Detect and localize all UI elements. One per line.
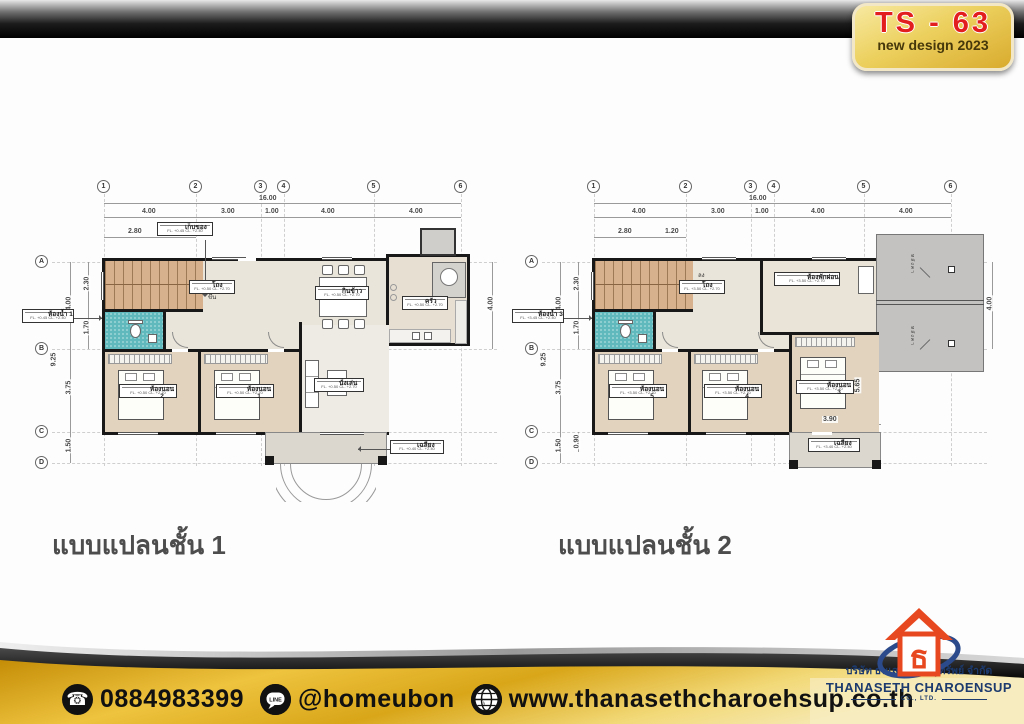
dim-sub: 1.70 (573, 320, 580, 336)
window (320, 432, 364, 435)
roof (876, 234, 984, 372)
dim-sub: 2.30 (83, 276, 90, 292)
bath-sink (148, 334, 157, 343)
porch-steps (276, 464, 376, 502)
dim-col: 4.00 (141, 208, 157, 215)
dim-line (104, 237, 196, 238)
grid-col-marker: 1 (97, 180, 110, 193)
line-item: LINE @homeubon (260, 684, 455, 715)
svg-text:LINE: LINE (269, 698, 282, 704)
wall (102, 309, 203, 312)
floor-plan-1: 1 2 3 4 5 6 A B C D 16.00 4.00 3.00 1.00… (22, 172, 522, 517)
chair (322, 319, 333, 329)
company-block: ธ บริษัท ธนเสฏฐ์ เจริญทรัพย์ จำกัด THANA… (824, 662, 1014, 702)
grid-col-marker: 3 (744, 180, 757, 193)
column (872, 460, 881, 469)
porch (265, 432, 387, 464)
grid-col-marker: 2 (189, 180, 202, 193)
leader-arrow (99, 315, 105, 321)
grid-row-marker: D (525, 456, 538, 469)
dim-row: 1.50 (65, 438, 72, 454)
svg-text:ธ: ธ (909, 639, 929, 675)
dim-col: 4.00 (631, 208, 647, 215)
grid-col-marker: 5 (367, 180, 380, 193)
bath-sink (638, 334, 647, 343)
grid-col-marker: 3 (254, 180, 267, 193)
wall (299, 322, 302, 432)
model-subtitle: new design 2023 (855, 37, 1011, 53)
dim-sub: 1.20 (664, 228, 680, 235)
dim-row: 3.75 (555, 380, 562, 396)
door-opening (172, 349, 188, 352)
burner (424, 332, 432, 340)
toilet-tank (128, 320, 143, 324)
dim-col: 1.00 (754, 208, 770, 215)
phone-item: ☎ 0884983399 (62, 684, 244, 715)
kitchen-counter (389, 329, 451, 343)
room-label-porch: เฉลียงFL. +0.40 CL. +2.40 (390, 440, 444, 454)
wardrobe (204, 354, 268, 364)
grid-row-marker: A (35, 255, 48, 268)
window (101, 272, 104, 300)
room-label-lounge: ห้องพักผ่อนFL. +3.50 CL. +2.70 (774, 272, 840, 286)
dim-total-width: 16.00 (258, 195, 278, 202)
burner (412, 332, 420, 340)
plan2-title: แบบแปลนชั้น 2 (558, 525, 732, 566)
line-app-icon: LINE (260, 684, 291, 715)
room-label-bedroom1: ห้องนอน 1FL. +0.50 CL. +2.70 (216, 384, 274, 398)
toilet (620, 324, 631, 338)
leader-arrow (355, 446, 361, 452)
leader-line (358, 449, 390, 450)
dim-right: 4.00 (487, 296, 494, 312)
grid-row-marker: A (525, 255, 538, 268)
chair (354, 265, 365, 275)
stair-direction-note: ลง (698, 270, 705, 280)
dim-line (594, 217, 951, 218)
divider-line (942, 699, 987, 700)
column (948, 266, 955, 273)
grid-row-marker: C (35, 425, 48, 438)
wall (198, 352, 201, 432)
grid-col-marker: 2 (679, 180, 692, 193)
dim-sub: 2.80 (617, 228, 633, 235)
room-label-dining: กินข้าวFL. +0.50 CL. +2.70 (315, 286, 369, 300)
wall (653, 312, 656, 352)
window (322, 257, 352, 260)
wall (789, 335, 792, 432)
dim-line (104, 203, 461, 204)
door-opening (238, 258, 256, 261)
room-label-bath: ห้องน้ำ 3FL. +3.45 CL. +2.40 (512, 309, 564, 323)
toilet (130, 324, 141, 338)
roof-label: หลังคา (908, 326, 916, 346)
room-label-living: นั่งเล่นFL. +0.50 CL. +2.70 (314, 378, 364, 392)
grid-col-marker: 4 (767, 180, 780, 193)
roof-ridge (876, 300, 984, 301)
dim-balcony-width: 3.90 (822, 416, 838, 423)
stove-chimney (420, 228, 456, 256)
chair (354, 319, 365, 329)
chair (322, 265, 333, 275)
wall (163, 312, 166, 352)
dim-col: 1.00 (264, 208, 280, 215)
dim-col: 3.00 (220, 208, 236, 215)
dim-line (70, 262, 71, 463)
grid-col-marker: 6 (944, 180, 957, 193)
dim-col: 4.00 (408, 208, 424, 215)
dim-total-width: 16.00 (748, 195, 768, 202)
kitchen-counter (455, 300, 467, 344)
dim-col: 4.00 (810, 208, 826, 215)
gridline (542, 463, 987, 464)
column (378, 456, 387, 465)
room-label-bedroom5: ห้องนอน 5FL. +3.50 CL. +2.70 (609, 384, 667, 398)
divider-line (851, 699, 896, 700)
leader-arrow (589, 315, 595, 321)
dim-sub: 2.30 (573, 276, 580, 292)
dim-col: 4.00 (320, 208, 336, 215)
round-sink (440, 268, 458, 286)
grid-row-marker: D (35, 456, 48, 469)
phone-icon: ☎ (62, 684, 93, 715)
grid-col-marker: 5 (857, 180, 870, 193)
dim-total-height: 9.25 (540, 352, 547, 368)
model-code: TS - 63 (855, 7, 1011, 40)
plan1-title: แบบแปลนชั้น 1 (52, 525, 226, 566)
line-id: @homeubon (298, 685, 455, 714)
leader-line (74, 318, 102, 319)
grid-col-marker: 4 (277, 180, 290, 193)
burner (390, 284, 397, 291)
dim-col: 3.00 (710, 208, 726, 215)
wardrobe (108, 354, 172, 364)
column (948, 340, 955, 347)
dim-line (594, 203, 951, 204)
dim-total-height: 9.25 (50, 352, 57, 368)
room-label-bedroom3: ห้องนอน 3FL. +3.50 CL. +2.70 (796, 380, 854, 394)
door-opening (758, 349, 774, 352)
burner (390, 294, 397, 301)
grid-col-marker: 1 (587, 180, 600, 193)
dim-col: 4.00 (898, 208, 914, 215)
window (591, 272, 594, 300)
room-label-kitchen: ครัวFL. +0.50 CL. +2.70 (402, 296, 448, 310)
model-badge: TS - 63 new design 2023 (852, 3, 1014, 71)
room-label-bedroom4: ห้องนอน 4FL. +3.50 CL. +2.70 (704, 384, 762, 398)
wall (760, 332, 879, 335)
dim-line (560, 262, 561, 463)
door-opening (268, 349, 284, 352)
wardrobe (694, 354, 758, 364)
column (789, 460, 798, 469)
door-opening (812, 432, 832, 435)
wall (760, 261, 763, 335)
room-label-bedroom2: ห้องนอน 2FL. +0.50 CL. +2.70 (119, 384, 177, 398)
globe-icon (471, 684, 502, 715)
window (608, 432, 648, 435)
room-label-storage: เก็บของFL. +0.45 CL. +2.40 (157, 222, 213, 236)
leader-line (564, 318, 592, 319)
footer: ☎ 0884983399 LINE @homeubon (0, 638, 1024, 724)
dim-sub: 0.90 (573, 434, 580, 450)
toilet-tank (618, 320, 633, 324)
lounge-bench (858, 266, 874, 294)
wall (592, 309, 693, 312)
wardrobe (598, 354, 662, 364)
door-opening (662, 349, 678, 352)
company-logo: ธ (869, 606, 969, 688)
room-label-bath: ห้องน้ำ 1FL. +0.45 CL. +2.40 (22, 309, 74, 323)
dim-sub: 2.80 (127, 228, 143, 235)
dim-sub: 1.70 (83, 320, 90, 336)
dim-line (594, 237, 686, 238)
window (706, 432, 746, 435)
room-label-hall: โถงFL. +3.50 CL. +2.70 (679, 280, 725, 294)
roof-ridge (876, 304, 984, 305)
window (118, 432, 158, 435)
phone-number: 0884983399 (100, 685, 244, 714)
page: { "badge": { "code": "TS - 63", "subtitl… (0, 0, 1024, 724)
grid-col-marker: 6 (454, 180, 467, 193)
dim-line (104, 217, 461, 218)
dim-roof: 4.00 (986, 296, 993, 312)
dim-row: 3.75 (65, 380, 72, 396)
dim-bedroom3-height: 5.65 (854, 378, 861, 394)
chair (338, 265, 349, 275)
leader-arrow (202, 294, 208, 300)
company-co-ltd: CO., LTD. (824, 696, 1014, 702)
room-label-hall: โถงFL. +0.50 CL. +2.70 (189, 280, 235, 294)
room-label-balcony: เฉลียงFL. +3.40 CL. +2.40 (808, 438, 860, 452)
contact-row: ☎ 0884983399 LINE @homeubon (62, 684, 930, 715)
floor-plan-2: 1 2 3 4 5 6 A B C D 16.00 4.00 3.00 1.00… (512, 172, 1012, 517)
chair (338, 319, 349, 329)
grid-row-marker: C (525, 425, 538, 438)
wall (688, 352, 691, 432)
column (265, 456, 274, 465)
window (216, 432, 256, 435)
window (812, 257, 846, 260)
wardrobe (795, 337, 855, 347)
roof-label: หลังคา (908, 254, 916, 274)
dim-row: 1.50 (555, 438, 562, 454)
grid-row-marker: B (35, 342, 48, 355)
grid-row-marker: B (525, 342, 538, 355)
window (702, 257, 736, 260)
